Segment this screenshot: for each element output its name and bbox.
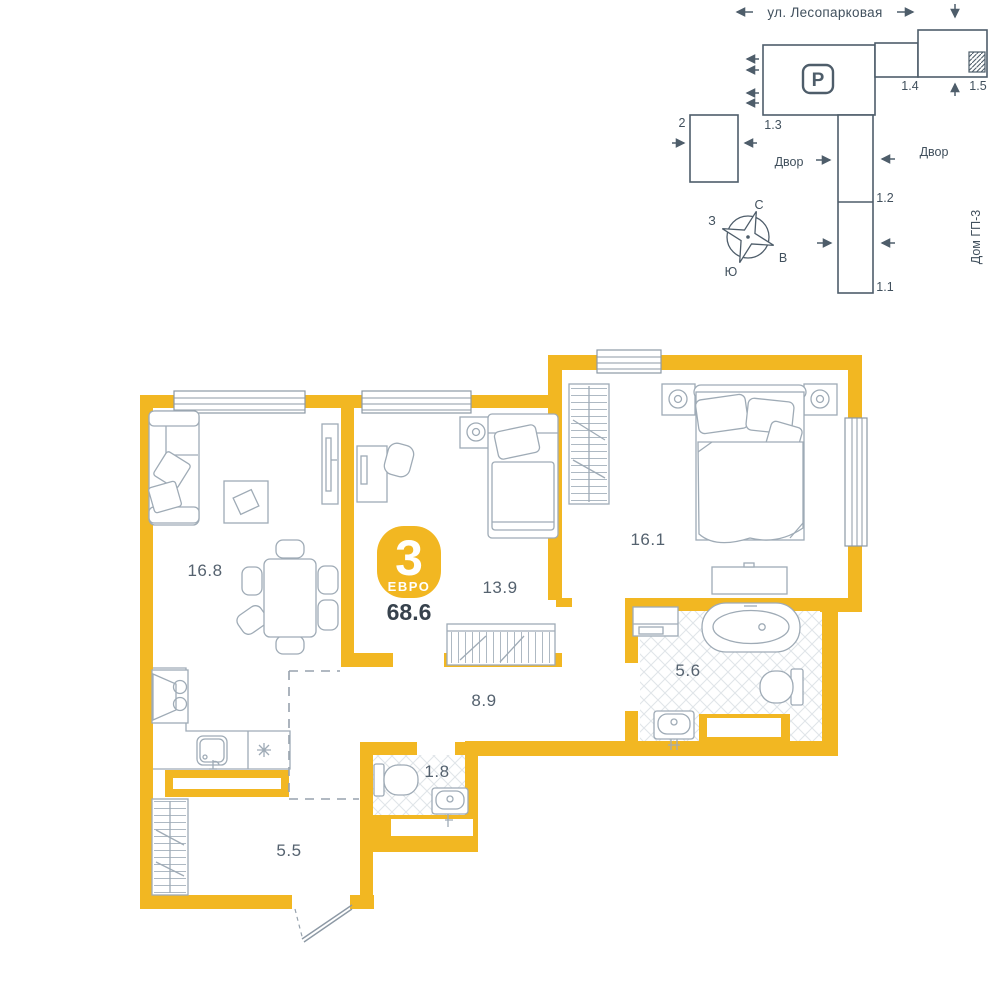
kitchen-partition bbox=[169, 774, 285, 793]
sconce-bedroom-1-right-icon bbox=[804, 384, 837, 415]
room-label-wc: 1.8 bbox=[424, 762, 449, 781]
label-yard-right: Двор bbox=[920, 145, 949, 159]
compass-south: Ю bbox=[725, 265, 738, 279]
wardrobe-entry bbox=[152, 799, 188, 895]
kitchen-zone-dashed-line bbox=[289, 671, 359, 799]
bathtub bbox=[702, 603, 800, 652]
apartment-badge: 3 ЕВРО 68.6 bbox=[377, 526, 441, 625]
coffee-table bbox=[224, 481, 268, 523]
room-label-bathroom: 5.6 bbox=[675, 661, 700, 680]
wardrobe-bedroom-1 bbox=[569, 384, 609, 504]
badge-room-count: 3 bbox=[395, 530, 423, 586]
double-bed bbox=[694, 385, 806, 543]
label-building-2: 2 bbox=[679, 116, 686, 130]
sconce-bedroom-1-left-icon bbox=[662, 384, 695, 415]
sconce-bedroom-2-icon bbox=[460, 417, 492, 448]
washing-machine bbox=[633, 607, 678, 636]
dining-table bbox=[234, 540, 338, 654]
window-bedroom-1-side bbox=[845, 418, 867, 546]
window-bedroom-1-top bbox=[597, 350, 661, 373]
label-house-gp3: Дом ГП-3 bbox=[969, 210, 983, 265]
total-area: 68.6 bbox=[387, 599, 432, 625]
building-vertical bbox=[838, 115, 873, 293]
compass-rose-icon: С З В Ю bbox=[708, 198, 787, 279]
compass-west: З bbox=[708, 214, 716, 228]
parking-icon: P bbox=[803, 65, 833, 93]
street-name: ул. Лесопарковая bbox=[767, 5, 882, 20]
current-location-marker bbox=[969, 52, 985, 72]
wardrobe-bedroom-2 bbox=[447, 624, 555, 665]
bathroom-duct-niche bbox=[707, 718, 781, 737]
building-2 bbox=[690, 115, 738, 182]
room-label-hallway: 8.9 bbox=[471, 691, 496, 710]
wc-duct-niche bbox=[391, 819, 473, 836]
plan-canvas: ул. Лесопарковая P 1.3 1.4 1.5 1.2 1.1 2… bbox=[0, 0, 1000, 1000]
toilet-bathroom bbox=[760, 669, 803, 705]
single-bed bbox=[488, 414, 558, 538]
badge-type-label: ЕВРО bbox=[388, 579, 431, 594]
window-bedroom-2 bbox=[362, 391, 471, 413]
label-building-1-5: 1.5 bbox=[969, 79, 986, 93]
kitchen-sink bbox=[197, 736, 227, 769]
sofa bbox=[148, 411, 199, 525]
room-label-living: 16.8 bbox=[187, 561, 222, 580]
room-label-bedroom-2: 13.9 bbox=[482, 578, 517, 597]
label-building-1-4: 1.4 bbox=[901, 79, 918, 93]
window-living bbox=[174, 391, 305, 413]
room-label-bedroom-1: 16.1 bbox=[630, 530, 665, 549]
toilet-wc bbox=[374, 764, 418, 796]
compass-north: С bbox=[754, 198, 763, 212]
apartment-plan bbox=[140, 350, 867, 942]
svg-text:P: P bbox=[812, 70, 825, 91]
compass-east: В bbox=[779, 251, 787, 265]
label-building-1-1: 1.1 bbox=[876, 280, 893, 294]
floor-plan-page: ул. Лесопарковая P 1.3 1.4 1.5 1.2 1.1 2… bbox=[0, 0, 1000, 1000]
dresser bbox=[712, 563, 787, 594]
room-label-entry: 5.5 bbox=[276, 841, 301, 860]
entrance-door bbox=[295, 905, 352, 942]
tv-stand bbox=[322, 424, 338, 504]
fridge-snowflake-icon bbox=[257, 743, 271, 757]
building-1-4 bbox=[875, 43, 918, 77]
label-yard-left: Двор bbox=[775, 155, 804, 169]
stove-hood bbox=[152, 670, 188, 723]
desk bbox=[357, 446, 387, 502]
label-building-1-2: 1.2 bbox=[876, 191, 893, 205]
label-building-1-3: 1.3 bbox=[764, 118, 781, 132]
site-plan: ул. Лесопарковая P 1.3 1.4 1.5 1.2 1.1 2… bbox=[672, 4, 987, 294]
